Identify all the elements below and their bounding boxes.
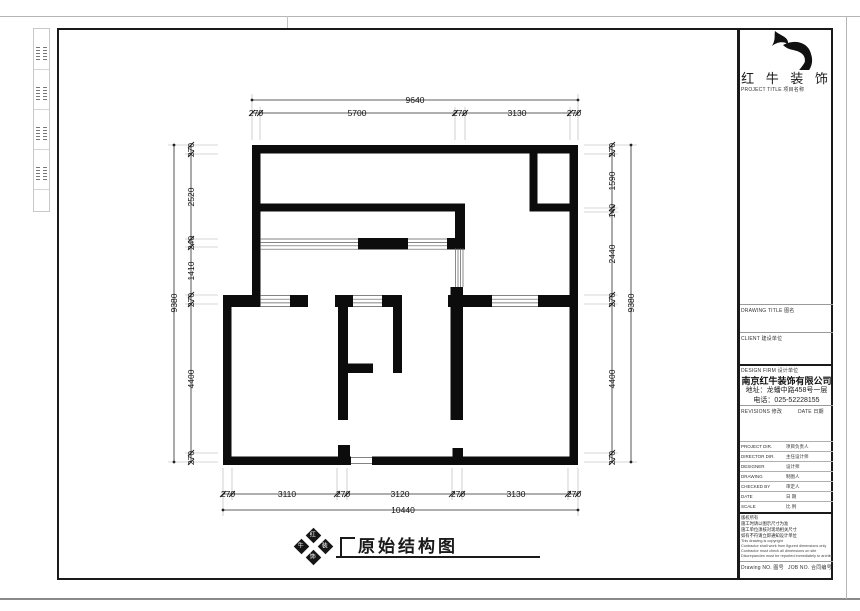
drawing-title: 原始结构图 [358,532,458,557]
sign-row-en: DATE [741,494,753,499]
dim-label: 140 [607,204,617,218]
sign-row-en: DESIGNER [741,464,765,469]
drawing-no-label: Drawing NO. 图号 [741,564,784,571]
dim-label: 3130 [507,489,526,499]
dim-label: 240 [186,236,196,250]
stamp-char: 牛 [298,543,304,549]
dim-label: 270 [607,293,617,307]
sign-row-cn: 设计师 [786,464,800,470]
revisions-label: REVISIONS 修改 [741,408,782,415]
dim-label: 2440 [607,244,617,263]
dim-left-total: 9380 [169,293,179,312]
dim-label: 270 [567,489,581,499]
dim-label: 270 [453,108,467,118]
sign-row-cn: 比 例 [786,504,796,510]
dim-label: 270 [607,143,617,157]
note-line: This drawing is copyright [741,539,832,543]
note-line: Discrepancies must be reported immediate… [741,554,832,558]
dim-label: 5700 [348,108,367,118]
company-address: 地址：龙蟠中路458号一层 [740,385,833,395]
dim-label: 270 [186,293,196,307]
brand-name: 红 牛 装 饰 [740,68,833,87]
dim-label: 4400 [607,369,617,388]
dim-label: 3130 [508,108,527,118]
client-label: CLIENT 建设单位 [741,335,782,342]
stamp-char: 装 [322,543,328,549]
dim-label: 270 [567,108,581,118]
title-block: 红 牛 装 饰 PROJECT TITLE 项目名称 DRAWING TITLE… [740,28,833,580]
floorplan-walls [223,145,578,465]
dim-label: 270 [186,143,196,157]
drawing-title-label: DRAWING TITLE 图名 [741,307,794,314]
sign-row-cn: 主任设计师 [786,454,809,460]
dim-label: 270 [249,108,263,118]
title-underline [336,556,540,558]
sign-row-en: CHECKED BY [741,484,770,489]
dim-label: 1590 [607,171,617,190]
project-title-label: PROJECT TITLE 项目名称 [741,86,804,93]
sign-row-en: DIRECTOR DIR. [741,454,775,459]
sign-row-cn: 审定人 [786,484,800,490]
company-logo-icon [758,30,816,70]
sign-row-cn: 项目负责人 [786,444,809,450]
job-no-label: JOB NO. 合同编号 [788,564,832,571]
dim-label: 3110 [278,489,297,499]
dim-label: 270 [221,489,235,499]
sign-row-cn: 制图人 [786,474,800,480]
design-firm-label: DESIGN FIRM 设计单位 [741,367,798,374]
cad-sheet: 9640 270 5700 270 3130 270 270 3110 270 … [0,0,860,611]
note-line: Contractor shall work from figured dimen… [741,544,832,548]
dim-label: 270 [336,489,350,499]
dim-label: 2520 [186,187,196,206]
dim-label: 4400 [186,369,196,388]
sign-row-en: DRAWING [741,474,763,479]
date-label: DATE 日期 [798,408,824,415]
sign-row-en: SCALE [741,504,756,509]
sign-row-en: PROJECT DIR. [741,444,772,449]
sign-row-cn: 日 期 [786,494,796,500]
dim-label: 270 [607,451,617,465]
dim-top-total: 9640 [406,95,425,105]
dim-bottom-total: 10440 [391,505,415,515]
dim-label: 1410 [186,261,196,280]
dim-label: 270 [186,451,196,465]
stamp-char: 饰 [310,554,316,560]
sign-row: SCALE 比 例 [740,501,833,512]
stamp-char: 红 [310,532,316,538]
title-bracket [340,537,355,556]
company-phone: 电话：025-52228155 [740,395,833,405]
dim-right-total: 9380 [626,293,636,312]
dim-label: 3120 [391,489,410,499]
note-line: Contractor must check all dimensions on … [741,549,832,553]
floorplan-canvas: 9640 270 5700 270 3130 270 270 3110 270 … [0,0,860,611]
dim-label: 270 [451,489,465,499]
